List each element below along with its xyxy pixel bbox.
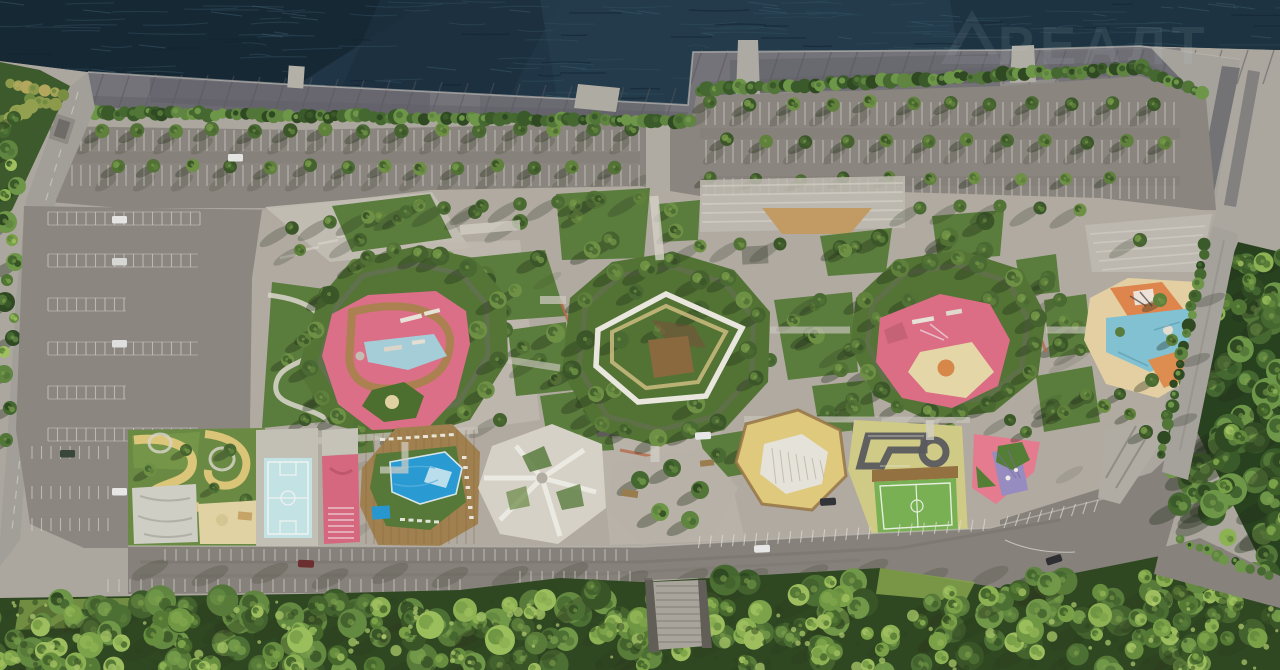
svg-text:РЕАЛТ: РЕАЛТ — [998, 16, 1211, 76]
